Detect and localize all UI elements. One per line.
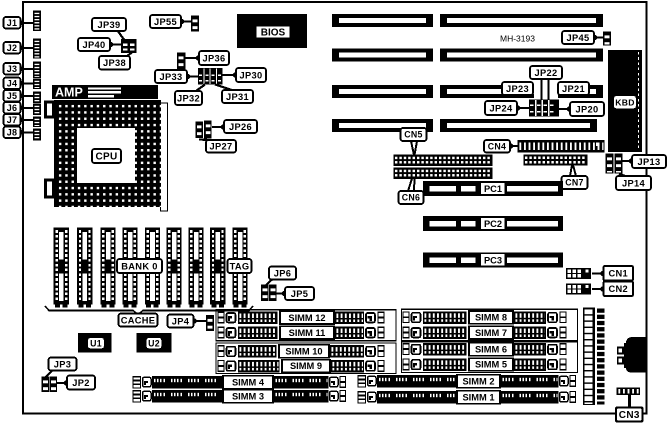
svg-text:JP38: JP38	[103, 58, 126, 68]
svg-text:JP30: JP30	[240, 70, 263, 80]
svg-text:PC3: PC3	[484, 255, 502, 265]
svg-text:JP3: JP3	[54, 359, 71, 369]
svg-text:SIMM 1: SIMM 1	[462, 392, 494, 402]
svg-text:JP26: JP26	[229, 122, 252, 132]
svg-text:SIMM 8: SIMM 8	[475, 313, 507, 323]
svg-text:CN5: CN5	[404, 130, 423, 140]
svg-text:JP24: JP24	[490, 103, 513, 113]
svg-text:JP2: JP2	[72, 378, 89, 388]
svg-text:JP55: JP55	[154, 17, 177, 27]
svg-text:SIMM 12: SIMM 12	[288, 313, 325, 323]
svg-text:BIOS: BIOS	[261, 28, 286, 39]
svg-text:MH-3193: MH-3193	[500, 34, 535, 44]
svg-text:BANK 0: BANK 0	[121, 261, 157, 271]
svg-text:JP4: JP4	[172, 316, 190, 326]
svg-text:SIMM 3: SIMM 3	[232, 391, 264, 401]
svg-text:CPU: CPU	[95, 152, 117, 163]
svg-text:JP40: JP40	[83, 40, 106, 50]
svg-text:SIMM 5: SIMM 5	[475, 360, 507, 370]
svg-text:J6: J6	[7, 103, 18, 113]
svg-text:CN6: CN6	[402, 193, 421, 203]
svg-text:TAG: TAG	[230, 261, 250, 271]
svg-text:J4: J4	[7, 78, 18, 88]
svg-text:JP13: JP13	[638, 157, 661, 167]
svg-text:SIMM 9: SIMM 9	[290, 361, 322, 371]
svg-text:SIMM 10: SIMM 10	[285, 346, 322, 356]
svg-text:J2: J2	[7, 43, 18, 53]
svg-text:SIMM 2: SIMM 2	[462, 376, 494, 386]
svg-text:SIMM 11: SIMM 11	[289, 328, 326, 338]
svg-text:CN3: CN3	[619, 410, 640, 421]
svg-text:JP39: JP39	[98, 20, 121, 30]
svg-text:J1: J1	[7, 18, 18, 28]
svg-text:JP20: JP20	[576, 104, 599, 114]
svg-text:CACHE: CACHE	[121, 315, 156, 325]
svg-text:KBD: KBD	[615, 97, 635, 107]
svg-text:JP22: JP22	[535, 68, 558, 78]
svg-text:JP45: JP45	[567, 33, 590, 43]
svg-text:JP14: JP14	[622, 178, 645, 188]
svg-text:CN1: CN1	[609, 269, 629, 279]
svg-text:JP6: JP6	[274, 268, 291, 278]
svg-text:CN4: CN4	[488, 141, 507, 151]
svg-text:J5: J5	[7, 91, 18, 101]
svg-text:J8: J8	[7, 127, 18, 137]
svg-text:JP23: JP23	[506, 84, 529, 94]
svg-text:J3: J3	[7, 64, 18, 74]
svg-text:U2: U2	[148, 338, 160, 348]
svg-text:AMP: AMP	[55, 86, 83, 100]
svg-text:JP36: JP36	[203, 53, 226, 63]
svg-text:JP31: JP31	[226, 92, 249, 102]
svg-text:SIMM 7: SIMM 7	[475, 328, 507, 338]
svg-text:U1: U1	[90, 338, 102, 348]
svg-text:JP33: JP33	[160, 72, 183, 82]
svg-text:JP5: JP5	[291, 289, 308, 299]
svg-text:JP21: JP21	[562, 84, 585, 94]
svg-text:J7: J7	[7, 115, 18, 125]
svg-text:JP32: JP32	[177, 93, 200, 103]
svg-text:PC1: PC1	[484, 184, 502, 194]
svg-text:SIMM 6: SIMM 6	[475, 344, 507, 354]
svg-text:PC2: PC2	[484, 219, 502, 229]
svg-text:JP27: JP27	[210, 142, 233, 152]
svg-text:CN7: CN7	[565, 178, 584, 188]
svg-text:SIMM 4: SIMM 4	[232, 377, 265, 387]
svg-text:CN2: CN2	[609, 284, 629, 294]
